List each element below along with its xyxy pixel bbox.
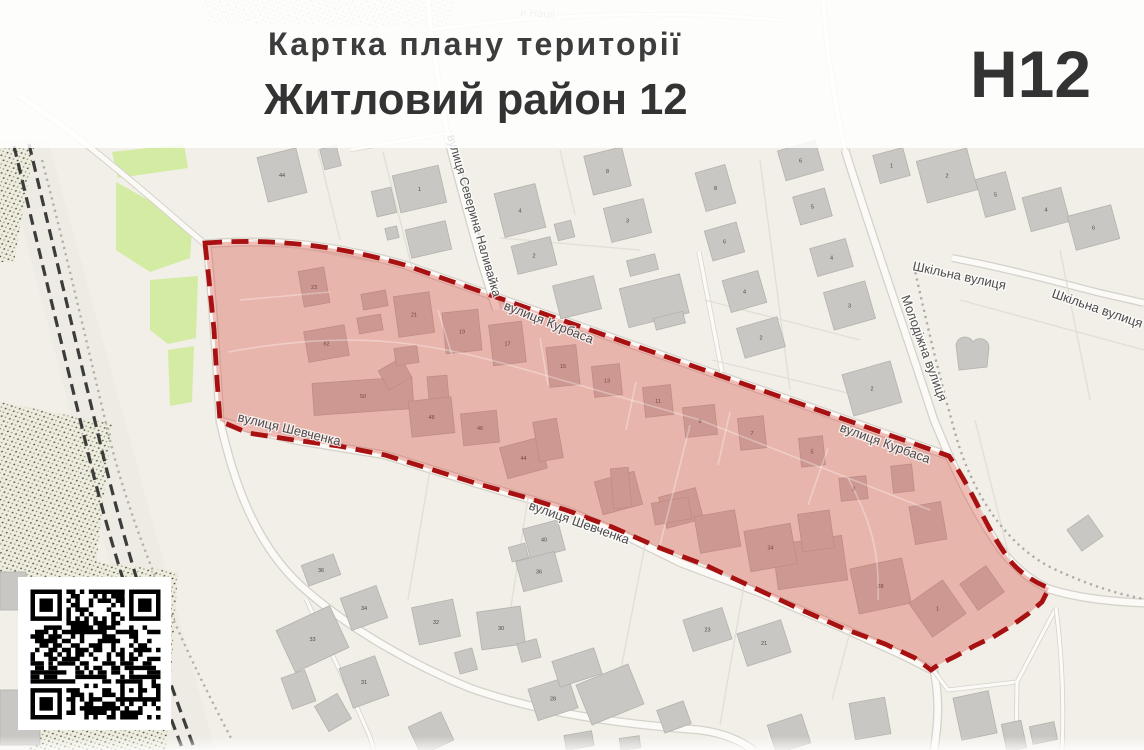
svg-text:4: 4 [518, 209, 521, 215]
svg-text:4: 4 [1044, 208, 1047, 214]
svg-text:33: 33 [309, 637, 315, 643]
svg-text:5: 5 [811, 205, 814, 211]
svg-text:Картка плану території: Картка плану території [268, 26, 682, 62]
svg-text:31: 31 [361, 680, 367, 686]
svg-text:3: 3 [848, 304, 851, 310]
svg-text:2: 2 [532, 254, 535, 260]
svg-text:6: 6 [799, 159, 802, 165]
svg-text:6: 6 [1092, 226, 1095, 232]
svg-text:40: 40 [541, 538, 547, 544]
svg-text:32: 32 [433, 620, 439, 626]
svg-text:2: 2 [945, 174, 948, 180]
svg-text:1: 1 [890, 164, 893, 170]
svg-text:Н12: Н12 [970, 37, 1091, 111]
svg-text:8: 8 [606, 169, 609, 175]
svg-text:3: 3 [626, 219, 629, 225]
svg-text:34: 34 [361, 606, 367, 612]
svg-text:4: 4 [830, 256, 833, 262]
svg-text:21: 21 [761, 641, 767, 647]
svg-text:28: 28 [550, 697, 556, 703]
svg-text:4: 4 [743, 290, 746, 296]
svg-text:30: 30 [498, 626, 504, 632]
svg-text:Житловий район 12: Житловий район 12 [263, 76, 688, 124]
svg-text:8: 8 [714, 186, 717, 192]
svg-text:44: 44 [279, 173, 285, 179]
svg-text:23: 23 [704, 628, 710, 634]
svg-text:1: 1 [418, 187, 421, 193]
svg-text:2: 2 [870, 387, 873, 393]
svg-text:2: 2 [759, 336, 762, 342]
svg-text:36: 36 [536, 570, 542, 576]
svg-text:6: 6 [723, 240, 726, 246]
svg-text:36: 36 [318, 568, 324, 574]
svg-text:5: 5 [994, 193, 997, 199]
